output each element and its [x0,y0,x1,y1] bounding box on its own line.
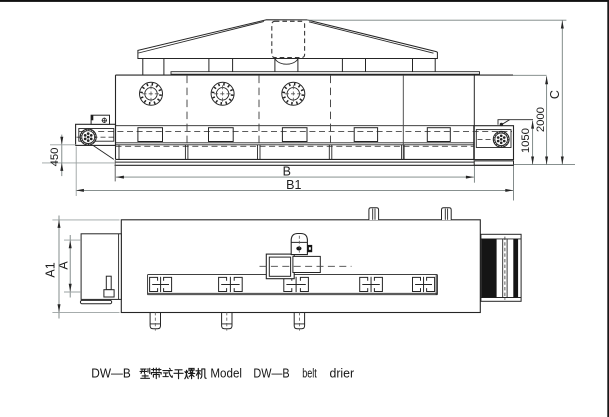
svg-text:C: C [548,90,562,99]
svg-text:DW—B: DW—B [91,366,131,381]
svg-text:drier: drier [330,366,355,381]
svg-text:Model: Model [210,366,242,381]
svg-text:450: 450 [49,148,61,167]
svg-text:2000: 2000 [535,107,547,132]
svg-text:A: A [56,261,70,270]
svg-text:1050: 1050 [520,128,532,153]
svg-text:B1: B1 [286,178,301,192]
svg-text:belt: belt [302,366,317,381]
svg-text:A1: A1 [44,262,58,277]
svg-text:B: B [283,165,291,179]
svg-text:DW—B: DW—B [253,366,289,381]
